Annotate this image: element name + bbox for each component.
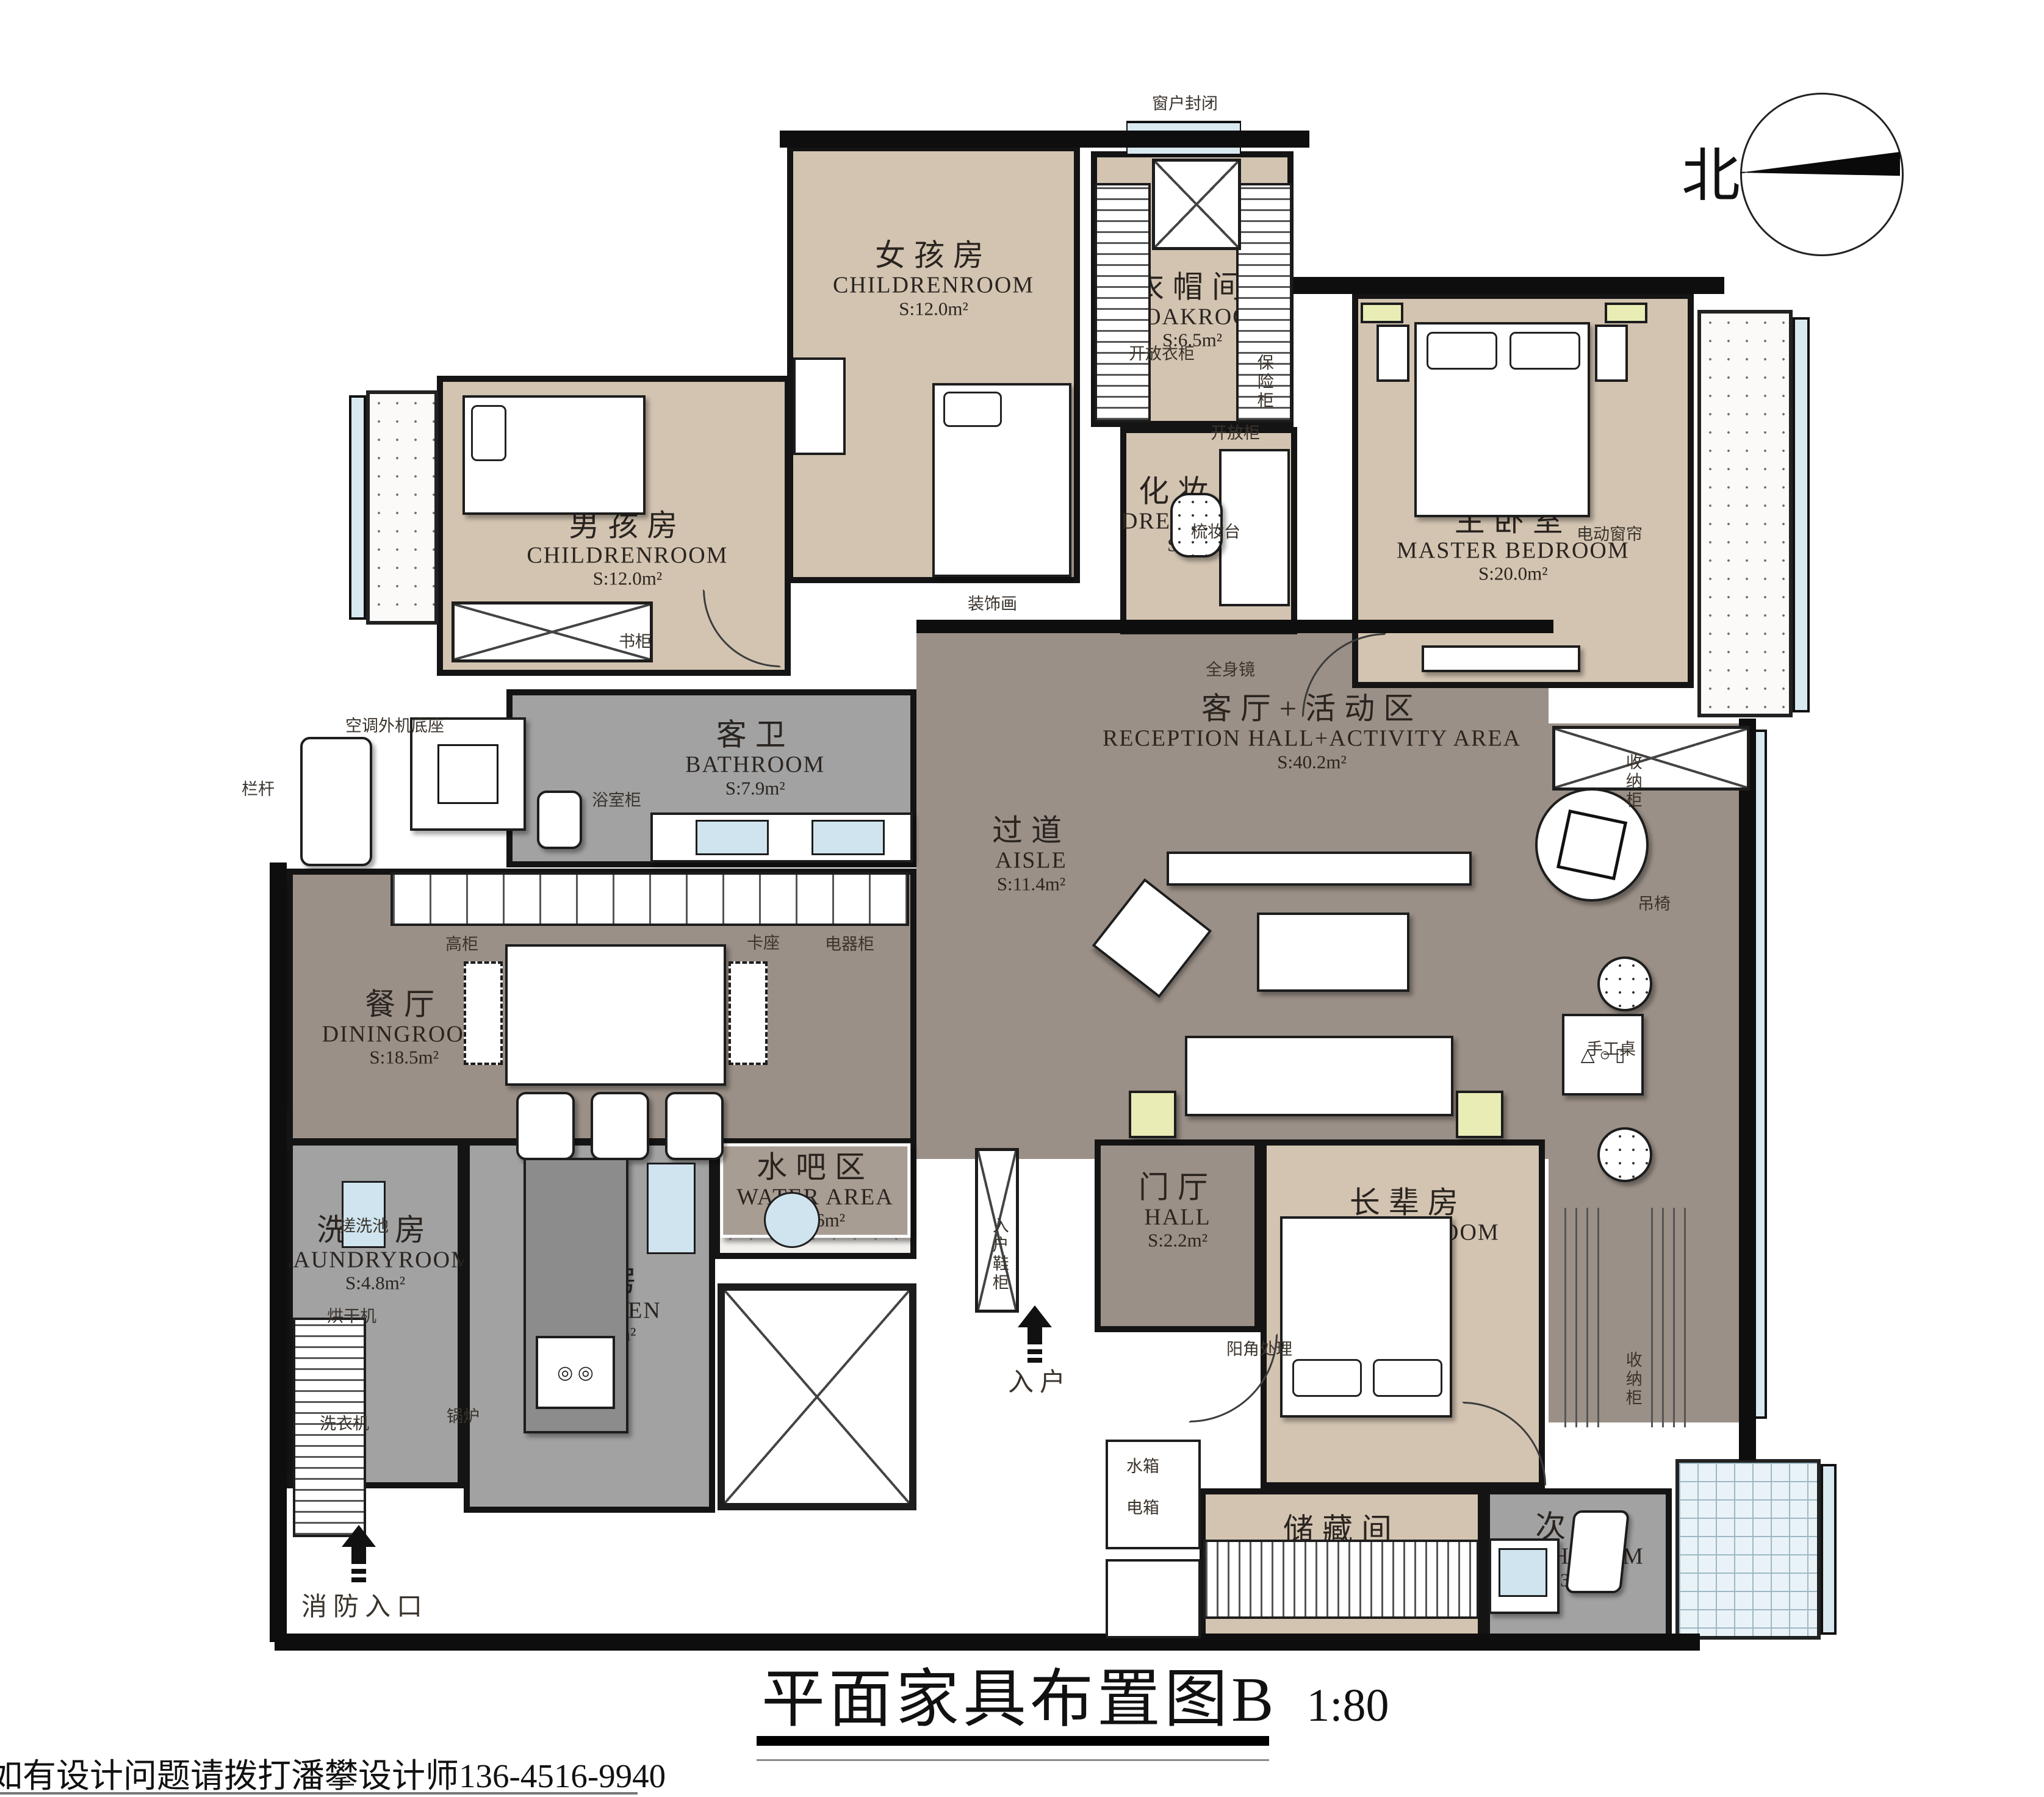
- room-area: S:12.0m²: [527, 569, 728, 590]
- tv-wall-living: [1167, 852, 1472, 886]
- annotation-dryer: 烘干机: [327, 1308, 376, 1326]
- room-area: S:18.5m²: [322, 1047, 486, 1068]
- balcony-master: [1697, 310, 1793, 717]
- pillow: [1292, 1359, 1362, 1397]
- room-area: S:4.8m²: [278, 1273, 473, 1294]
- title-underline-thin: [757, 1759, 1269, 1761]
- room-name-cn: 门厅: [1139, 1170, 1217, 1204]
- annotation-ac_base: 空调外机底座: [345, 717, 444, 736]
- room-name-en: DININGROOM: [322, 1021, 486, 1047]
- room-name-cn: 水吧区: [736, 1150, 894, 1184]
- room-area: S:7.9m²: [685, 778, 825, 799]
- pillow: [471, 405, 506, 461]
- plant-rack-right: [1651, 1208, 1690, 1427]
- annotation-ebox: 电箱: [1126, 1499, 1159, 1518]
- annotation-electric_curtain: 电动窗帘: [1577, 526, 1643, 544]
- speaker-right: [1456, 1091, 1503, 1138]
- bed-boys: [462, 395, 646, 515]
- annotation-safe: 保险柜: [1254, 354, 1273, 411]
- drawing-title: 平面家具布置图B 1:80: [761, 1647, 1389, 1739]
- burners: ◎ ◎: [538, 1338, 613, 1407]
- wall-right: [1739, 719, 1756, 1460]
- room-name-en: LAUNDRYROOM: [278, 1247, 473, 1273]
- room-area: S:12.0m²: [833, 298, 1034, 320]
- piano-girls: [793, 357, 846, 455]
- annotation-boiler: 锅炉: [447, 1408, 480, 1426]
- room-name-en: CHILDRENROOM: [833, 273, 1034, 299]
- footer-line: [0, 1792, 638, 1795]
- annotation-hanging_chair: 吊椅: [1638, 895, 1671, 914]
- title-scale: 1:80: [1306, 1679, 1389, 1732]
- bed-master: [1414, 322, 1590, 517]
- designer-contact: 如有设计问题请拨打潘攀设计师136-4516-9940: [0, 1748, 666, 1797]
- annotation-window_sealed: 窗户封闭: [1152, 95, 1218, 113]
- water-bar-sink: [764, 1192, 820, 1248]
- annotation-tank: 水箱: [1126, 1458, 1159, 1476]
- wall-master-top: [1294, 277, 1724, 294]
- bath2-toilet: [1565, 1510, 1630, 1593]
- tank-box-cabinet: [1106, 1440, 1201, 1549]
- storage-cabinets-top: [1552, 726, 1750, 791]
- annotation-entry: 入户: [1008, 1369, 1071, 1397]
- room-aisle: 过道AISLES:11.4m²: [952, 781, 1110, 927]
- nightstand-master-left: [1376, 325, 1409, 382]
- annotation-bath_cabinet: 浴室柜: [592, 792, 641, 810]
- tank-box-cabinet-2: [1106, 1559, 1201, 1638]
- annotation-booth: 卡座: [747, 934, 780, 953]
- stove: ◎ ◎: [536, 1336, 615, 1409]
- bench-left: [464, 961, 503, 1065]
- room-label-dining: 餐厅DININGROOMS:18.5m²: [322, 987, 486, 1068]
- laundry-sink: [342, 1181, 386, 1248]
- room-area: S:2.2m²: [1139, 1230, 1217, 1251]
- room-label-girls: 女孩房CHILDRENROOMS:12.0m²: [833, 239, 1034, 320]
- shower-drain: [437, 744, 498, 804]
- cabinet-accent-left: [1361, 303, 1403, 323]
- bath2-sink: [1499, 1548, 1547, 1597]
- window-master-balcony: [1793, 317, 1810, 712]
- balcony-boys: [366, 390, 438, 625]
- room-name-en: HALL: [1139, 1204, 1217, 1230]
- closet-cloak-top: [1152, 159, 1241, 250]
- annotation-railing: 栏杆: [242, 781, 275, 799]
- sink-right: [811, 820, 885, 855]
- closet-cloak-left: [1095, 183, 1151, 422]
- room-hall: 门厅HALLS:2.2m²: [1095, 1139, 1261, 1332]
- room-name-cn: 过道: [992, 813, 1070, 847]
- fire-entry-arrow-icon: [339, 1525, 378, 1584]
- dining-chair-3: [665, 1092, 724, 1160]
- north-label: 北: [1682, 128, 1740, 213]
- shelf-boys: [452, 601, 653, 662]
- wall-left: [270, 863, 287, 1642]
- elevator: [718, 1283, 916, 1510]
- room-label-boys: 男孩房CHILDRENROOMS:12.0m²: [527, 508, 728, 589]
- annotation-bookcase: 书柜: [619, 633, 652, 651]
- pillow: [1427, 332, 1497, 370]
- toilet-guest: [537, 791, 582, 849]
- bathtub: [300, 737, 372, 866]
- room-name-en: CHILDRENROOM: [527, 542, 728, 569]
- nightstand-master-right: [1595, 325, 1628, 382]
- room-name-en: AISLE: [992, 847, 1070, 873]
- cabinet-accent-right: [1605, 303, 1647, 323]
- compass-needle-icon: [1740, 93, 1900, 253]
- bench-right: [729, 961, 768, 1065]
- stool-bottom: [1597, 1127, 1652, 1182]
- sofa-main: [1185, 1036, 1453, 1116]
- title-underline-bar: [757, 1736, 1269, 1746]
- storage-rack: [1203, 1540, 1479, 1619]
- tv-cabinet-master: [1422, 645, 1580, 672]
- annotation-dresser: 梳妆台: [1191, 523, 1240, 542]
- wall-top: [780, 131, 1309, 148]
- window-boys-balcony: [349, 395, 366, 620]
- annotation-entry_shoe: 入户鞋柜: [990, 1217, 1008, 1293]
- pillow: [1373, 1359, 1442, 1397]
- annotation-corner: 阳角处理: [1226, 1341, 1292, 1359]
- annotation-appliance_cabinet: 电器柜: [825, 936, 874, 954]
- bath2-vanity: [1489, 1538, 1560, 1614]
- annotation-tall_cabinet: 高柜: [445, 936, 478, 954]
- room-label-hall: 门厅HALLS:2.2m²: [1139, 1170, 1217, 1251]
- annotation-open_wardrobe: 开放衣柜: [1129, 345, 1195, 364]
- room-living: 客厅+活动区RECEPTION HALL+ACTIVITY AREAS:40.2…: [1098, 647, 1525, 817]
- pillow: [943, 392, 1002, 427]
- room-name-en: BATHROOM: [685, 752, 825, 778]
- room-water: 水吧区WATER AREAS:2.6m²: [714, 1139, 916, 1259]
- room-label-aisle: 过道AISLES:11.4m²: [992, 813, 1070, 894]
- wall-central-top: [916, 620, 1553, 633]
- kitchen-sink: [647, 1163, 696, 1254]
- hanging-chair-cushion: [1556, 809, 1627, 880]
- room-name-en: RECEPTION HALL+ACTIVITY AREA: [1103, 725, 1521, 751]
- bed-girls: [932, 383, 1071, 577]
- room-name-cn: 餐厅: [322, 987, 486, 1021]
- speaker-left: [1129, 1091, 1176, 1138]
- floor-plan: 女孩房CHILDRENROOMS:12.0m²衣帽间CLOAKROOMS:6.5…: [0, 0, 2044, 1797]
- annotation-fire: 消防入口: [301, 1593, 428, 1621]
- room-area: S:11.4m²: [992, 873, 1070, 895]
- room-label-gbath: 客卫BATHROOMS:7.9m²: [685, 718, 825, 799]
- cabinet-row-dining: [390, 872, 909, 926]
- room-name-cn: 女孩房: [833, 239, 1034, 273]
- coffee-table: [1257, 913, 1409, 992]
- title-text: 平面家具布置图B: [761, 1647, 1277, 1739]
- entry-arrow-icon: [1015, 1305, 1054, 1364]
- stool-top: [1597, 956, 1652, 1011]
- sink-left: [696, 820, 769, 855]
- annotation-open_cabinet: 开放柜: [1211, 425, 1260, 443]
- annotation-scrub_sink: 搓洗池: [339, 1218, 389, 1236]
- annotation-washer: 洗衣机: [320, 1415, 369, 1433]
- dining-chair-2: [591, 1092, 649, 1160]
- room-name-cn: 客卫: [685, 718, 825, 752]
- annotation-storage_cab1: 收纳柜: [1623, 753, 1641, 810]
- window-bottom-right: [1821, 1464, 1837, 1635]
- annotation-storage_cab2: 收纳柜: [1623, 1351, 1641, 1408]
- dining-table: [505, 944, 726, 1086]
- bed-old: [1280, 1216, 1452, 1418]
- annotation-deco_painting: 装饰画: [968, 595, 1017, 614]
- pillow: [1510, 332, 1580, 370]
- dining-chair-1: [516, 1092, 575, 1160]
- room-area: S:20.0m²: [1397, 564, 1630, 585]
- room-area: S:40.2m²: [1103, 751, 1521, 773]
- plant-rack-left: [1564, 1208, 1603, 1427]
- room-name-cn: 长辈房: [1317, 1186, 1500, 1220]
- annotation-craft_table: 手工桌: [1586, 1041, 1636, 1059]
- annotation-full_mirror: 全身镜: [1206, 661, 1255, 680]
- balcony-bottom-right: [1675, 1459, 1821, 1640]
